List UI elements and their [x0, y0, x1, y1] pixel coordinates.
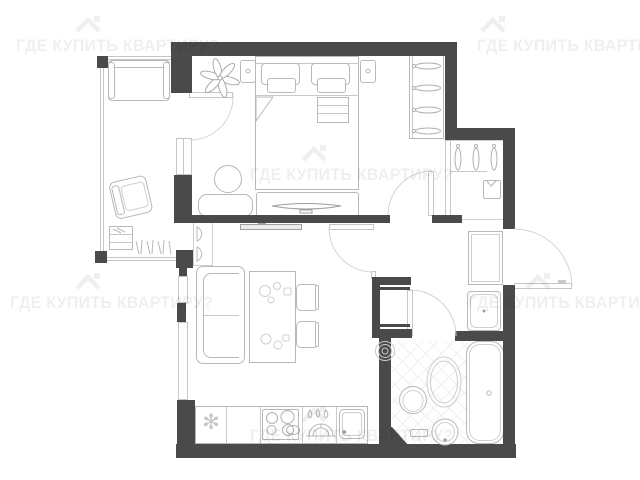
house-icon — [300, 405, 328, 423]
blanket-corner-fold — [256, 97, 273, 121]
shirt-collar — [487, 181, 496, 186]
house-icon — [300, 144, 328, 162]
decor-items — [197, 227, 202, 261]
balcony-door-arc — [190, 95, 233, 140]
watermark-text: ГДЕ КУПИТЬ КВАРТИРУ? — [477, 36, 640, 56]
watermark-text: ГДЕ КУПИТЬ КВАРТИРУ? — [250, 426, 453, 446]
wardrobe-hangers — [412, 63, 440, 134]
bathroom-door-arc — [410, 290, 456, 336]
watermark-text: ГДЕ КУПИТЬ КВАРТИРУ? — [16, 36, 219, 56]
closet-hangers — [455, 144, 497, 170]
towel-rings — [376, 342, 395, 361]
watermark-text: ГДЕ КУПИТЬ КВАРТИРУ? — [468, 293, 640, 313]
nightstand-knob — [246, 69, 250, 73]
living-room-door-arc — [329, 228, 373, 272]
watermark-text: ГДЕ КУПИТЬ КВАРТИРУ? — [250, 165, 453, 185]
oval-rug — [427, 357, 461, 407]
plant-icon — [200, 58, 241, 99]
bathtub-drain — [487, 391, 491, 395]
nightstand-knob — [366, 69, 370, 73]
house-icon — [524, 272, 552, 290]
round-pouf — [215, 166, 242, 193]
toilet — [400, 387, 427, 414]
house-icon — [479, 15, 507, 33]
floor-plan: ✻ — [0, 0, 640, 480]
bedroom-tv — [272, 204, 341, 214]
watermark-text: ГДЕ КУПИТЬ КВАРТИРУ? — [10, 293, 213, 313]
table-decor — [260, 283, 292, 350]
house-icon — [74, 272, 102, 290]
book-row — [113, 228, 171, 254]
house-icon — [74, 15, 102, 33]
